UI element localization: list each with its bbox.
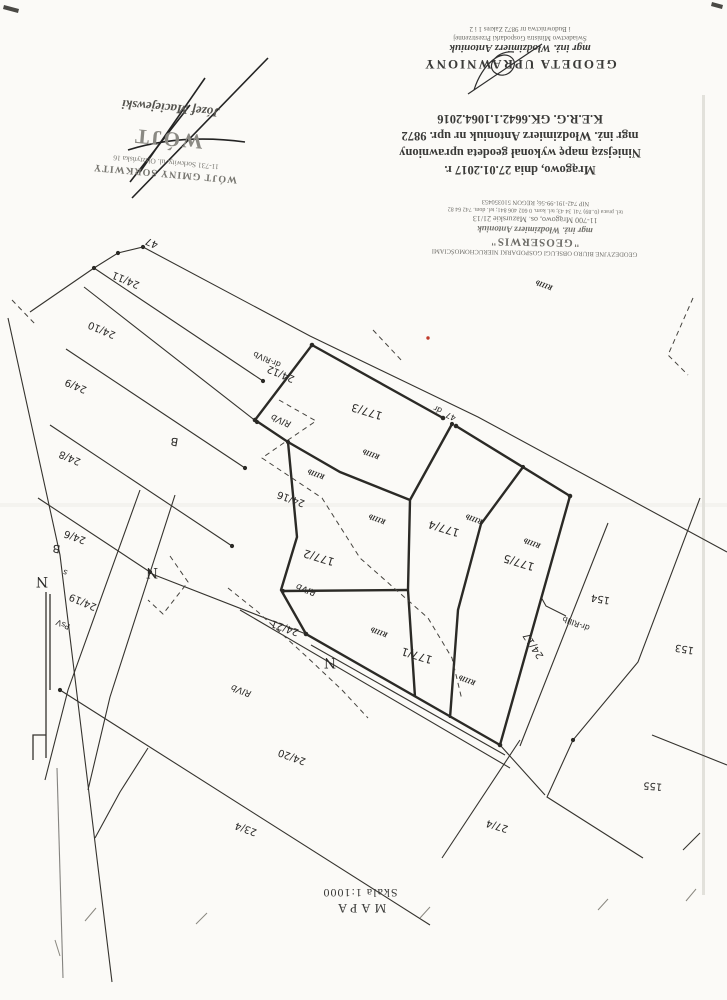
wojt-stamp: WÓJT GMINY SORKWITY 11-731 Sorkwity, ul.…	[75, 92, 261, 187]
red-survey-point	[426, 336, 429, 339]
certificate-title: GEODETA UPRAWNIONY	[370, 56, 670, 72]
road-soil-label: PsV	[54, 617, 71, 631]
soil-class-label: RIIIb	[367, 512, 388, 527]
certificate-name: mgr inż. Włodzimierz Antoniuk	[370, 42, 670, 54]
parcel-number-label: 24/20	[277, 746, 308, 766]
parcel-number-label: 177/5	[502, 551, 536, 573]
building-area-label: B	[52, 541, 62, 555]
statement-line-date: Mrągowo, dnia 27.01.2017 r.	[370, 161, 670, 178]
statement-line-kerg: K.E.R.G. GK.6642.1.1064.2016	[370, 110, 670, 127]
letter-n-label: N	[324, 654, 336, 670]
statement-line-1: Niniejszą mapę wykonał geodeta uprawnion…	[370, 144, 670, 161]
parcel-number-label: 24/8	[58, 448, 83, 467]
parcel-number-label: 154	[590, 591, 611, 605]
soil-class-label: RIVb	[230, 682, 253, 699]
soil-class-label: RIIIb	[306, 467, 327, 482]
road-soil-label: s	[62, 567, 69, 577]
parcel-number-label: 23/4	[234, 819, 259, 837]
parcel-number-label: 47	[144, 235, 160, 250]
road-soil-label: 47	[444, 410, 457, 422]
parcel-number-label: 177/3	[350, 400, 384, 422]
letter-n-label: N	[146, 564, 158, 580]
parcel-number-label: 24/19	[68, 591, 99, 612]
soil-class-label: RIIIb	[522, 536, 543, 551]
soil-class-dashed-lines	[12, 298, 693, 718]
parcel-number-label: 177/1	[400, 644, 434, 666]
soil-class-label: RIIIb	[464, 512, 485, 527]
parcel-number-label: 177/2	[302, 546, 336, 568]
map-scale: Skala 1:1000	[295, 885, 425, 900]
soil-class-label: RIIIb	[457, 673, 478, 688]
building-area-label: B	[170, 434, 180, 448]
soil-class-label: RIVb	[295, 581, 318, 598]
scanned-map-document: 4724/1124/1024/924/824/624/1924/1224/162…	[0, 0, 727, 1000]
statement-block: Mrągowo, dnia 27.01.2017 r. Niniejszą ma…	[370, 110, 670, 178]
soil-class-label: RIIIb	[534, 278, 555, 293]
parcel-number-label: 24/11	[111, 269, 142, 290]
parcel-number-label: 24/10	[87, 319, 118, 340]
parcel-boundaries	[8, 247, 727, 982]
map-title: MAPA	[295, 900, 425, 916]
parcel-number-label: 153	[674, 641, 695, 655]
map-title-block: MAPA Skala 1:1000	[295, 885, 425, 919]
certificate-smallprint-2: i Budownictwa nr 9872 Zakres 1 i 2	[370, 24, 670, 33]
parcel-number-label: 24/9	[64, 376, 89, 395]
parcel-number-label: 24/21	[270, 617, 301, 637]
geoserwis-stamp: GEODEZYJNE BIURO OBSŁUGI GOSPODARKI NIER…	[420, 196, 651, 258]
soil-class-label: RIVb	[269, 411, 292, 428]
soil-class-label: RIIIb	[361, 447, 382, 462]
map-labels: 4724/1124/1024/924/824/624/1924/1224/162…	[36, 235, 695, 838]
parcel-number-label: 27/4	[485, 817, 510, 834]
statement-line-2: mgr inż. Włodzimierz Antoniuk nr upr. 98…	[370, 127, 670, 144]
scan-edge-shadow	[702, 95, 705, 895]
parcel-number-label: 24/6	[63, 527, 88, 545]
north-arrow	[33, 592, 50, 760]
parcel-number-label: 177/4	[427, 517, 461, 539]
certificate-smallprint-1: Świadectwo Ministra Gospodarki Przestrze…	[370, 33, 670, 42]
scan-corner-marks	[3, 2, 723, 13]
road-soil-label: dr-RIVb	[252, 349, 282, 369]
soil-class-label: RIIIb	[369, 625, 390, 640]
parcel-number-label: 155	[643, 779, 663, 792]
surveyor-certificate-block: GEODETA UPRAWNIONY mgr inż. Włodzimierz …	[370, 24, 670, 72]
scan-crease	[0, 503, 727, 507]
survey-points	[58, 245, 575, 747]
letter-n-label: N	[36, 573, 48, 589]
